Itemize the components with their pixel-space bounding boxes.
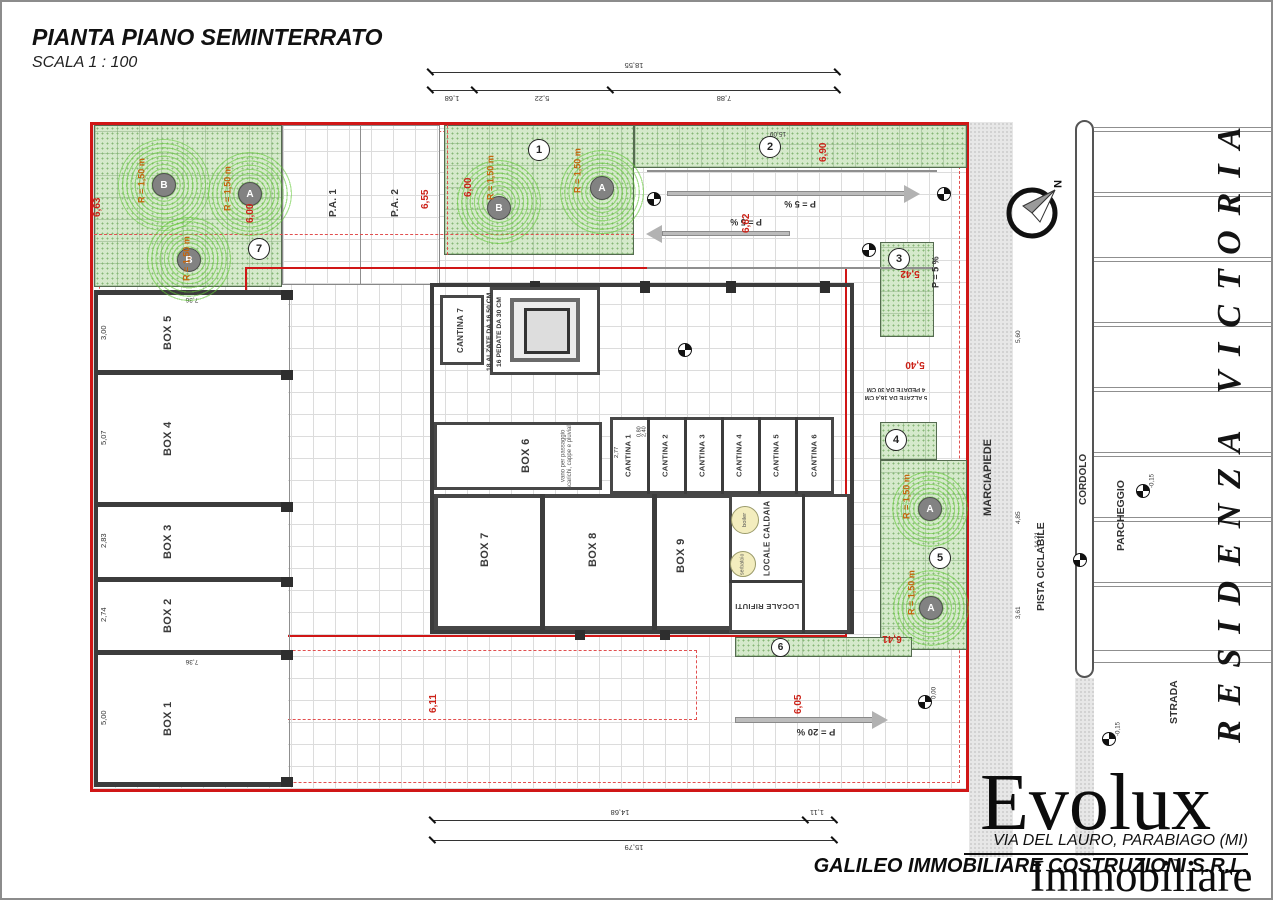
box-room (98, 655, 288, 782)
page-title: PIANTA PIANO SEMINTERRATO (32, 24, 383, 51)
tree-marker-a: A (918, 497, 942, 521)
compass: N (1003, 182, 1065, 244)
ramp-arrow-west (662, 231, 790, 236)
stair-treads-note: 16 PEDATE DA 30 CM (495, 287, 504, 377)
wall (758, 417, 761, 494)
dim-top-c: 7,88 (702, 94, 746, 103)
sidewalk-label: MARCIAPIEDE (981, 402, 997, 552)
red-dim: 5,42 (890, 268, 930, 279)
drawing-sheet: PIANTA PIANO SEMINTERRATO SCALA 1 : 100 … (0, 0, 1273, 900)
dim-box4-depth: 5,07 (99, 417, 109, 459)
tree-radius-label: R = 1,50 m (222, 160, 234, 218)
zone-circle-7: 7 (248, 238, 270, 260)
dim-sidewalk-b: 3,61 (1015, 595, 1024, 631)
stair-risers-note: 18 ALZATE DA 16,50 CM (485, 287, 494, 377)
dim-box1-depth: 5,00 (99, 697, 109, 739)
dim-top-b: 5,22 (522, 94, 562, 103)
room-label-cantina4: CANTINA 4 (733, 424, 746, 488)
ramp-arrow-east (667, 191, 905, 196)
level-value: -0,15 (1148, 468, 1157, 494)
room-label-cantina3: CANTINA 3 (696, 424, 709, 488)
wall (684, 417, 687, 494)
pilaster (281, 650, 293, 660)
wall (802, 494, 805, 633)
room-label-box9: BOX 9 (674, 520, 690, 592)
tree-radius-label: R = 1,50 m (136, 152, 148, 210)
dim-strip-width: 15,09 (758, 130, 798, 137)
level-marker (937, 187, 951, 201)
dim-bottom-b: 1,11 (800, 808, 834, 817)
red-dim: 5,40 (895, 359, 935, 370)
company-name: GALILEO IMMOBILIARE COSTRUZIONI S.R.L. (720, 855, 1248, 878)
wall (94, 650, 290, 655)
zone-circle-1: 1 (528, 139, 550, 161)
zone-circle-4: 4 (885, 429, 907, 451)
curb-pill (1075, 120, 1094, 678)
ramp-arrowhead (646, 225, 662, 243)
dim-line-top-segments (430, 90, 838, 91)
road-label: STRADA (1167, 657, 1182, 747)
red-dim: 6,90 (818, 132, 830, 172)
box-room (98, 295, 288, 370)
parking-bay-area (282, 125, 440, 285)
dim-top-a: 1,68 (434, 94, 470, 103)
room-label-rifiuti: LOCALE RIFIUTI (731, 602, 803, 611)
level-marker (862, 243, 876, 257)
red-dim: 6,63 (92, 182, 104, 232)
level-marker (1073, 553, 1087, 567)
parking-bay-divider (360, 125, 361, 285)
tree-marker-a: A (590, 176, 614, 200)
room-label-box1: BOX 1 (160, 660, 178, 778)
ramp-edge (647, 170, 937, 172)
dim-cantina-width: 2,77 (613, 437, 621, 467)
company-address: VIA DEL LAURO, PARABIAGO (MI) (962, 832, 1248, 850)
red-dim: 6,00 (463, 164, 475, 210)
pilaster (281, 290, 293, 300)
zone-circle-3: 3 (888, 248, 910, 270)
tree-radius-label: R = 1,50 m (181, 230, 193, 288)
dim-box-width: 7,36 (174, 658, 210, 665)
dim-curb-run: 14,21 (1034, 520, 1043, 560)
dim-line-top-total (430, 72, 838, 73)
room-label-cantina6: CANTINA 6 (808, 424, 821, 488)
garage-door-line (289, 292, 290, 784)
room-label-cantina7: CANTINA 7 (454, 299, 468, 361)
room-label-box5: BOX 5 (160, 302, 178, 364)
level-value: -0,15 (1114, 716, 1123, 742)
parking-label: PARCHEGGIO (1114, 452, 1129, 580)
wall (94, 502, 290, 507)
ext-stair-treads: 4 PEDATE DA 30 CM (860, 386, 932, 392)
wall (94, 577, 290, 582)
room-label-cantina1: CANTINA 1 (622, 424, 635, 488)
box6-note: vano per passaggio scarichi, cappe e plu… (558, 422, 576, 490)
room-label-box3: BOX 3 (160, 510, 178, 574)
project-name-vertical: RESIDENZA VICTORIA (1202, 57, 1258, 797)
pilaster (281, 370, 293, 380)
level-marker (678, 343, 692, 357)
garden-strip-northeast (634, 125, 967, 168)
room-label-box2: BOX 2 (160, 584, 178, 648)
red-dim: 6,62 (741, 200, 753, 246)
room-label-cantina2: CANTINA 2 (659, 424, 672, 488)
dim-line-bottom-segments (432, 820, 835, 821)
zone-circle-5: 5 (929, 547, 951, 569)
dim-box3-depth: 2,83 (99, 520, 109, 562)
dim-bottom-total: 15,79 (612, 843, 656, 852)
level-marker (647, 192, 661, 206)
boiler-tank: boiler (731, 506, 759, 534)
dim-bike-lane: 4,85 (1015, 500, 1024, 536)
tree-radius-label: R = 1,50 m (906, 564, 918, 622)
wall (94, 370, 290, 375)
room-label-box8: BOX 8 (586, 514, 602, 586)
red-dim: 6,55 (420, 174, 432, 224)
dim-bottom-a: 14,68 (598, 808, 642, 817)
wall (721, 417, 724, 494)
pilaster (726, 281, 736, 293)
wall (652, 494, 657, 630)
parking-bay-1-label: P.A. 1 (326, 167, 342, 239)
room-label-box7: BOX 7 (478, 514, 494, 586)
red-dim: 6,05 (793, 679, 805, 729)
pilaster (281, 577, 293, 587)
dim-cantina-door-h: 2,40 (642, 420, 649, 444)
tree-radius-label: R = 1,50 m (485, 149, 497, 207)
wall (795, 417, 798, 494)
wall (729, 580, 805, 583)
box-room (98, 375, 288, 502)
pilaster (820, 281, 830, 293)
boiler-label: boiler (731, 506, 759, 534)
dim-box2-depth: 2,74 (99, 594, 109, 636)
wall (94, 782, 290, 787)
bike-lane-label: PISTA CICLABILE (1034, 482, 1049, 652)
zone-circle-6: 6 (771, 638, 790, 657)
level-value: 0,00 (930, 680, 939, 706)
curb-label: CORDOLO (1077, 432, 1091, 527)
pilaster (281, 777, 293, 787)
ext-stair-risers: 5 ALZATE DA 16,4 CM (860, 394, 932, 400)
box6-room (434, 422, 602, 490)
red-dim: 6,41 (872, 633, 912, 644)
room-label-box4: BOX 4 (160, 390, 178, 488)
wall (540, 494, 545, 630)
wall (94, 290, 98, 787)
dim-line-bottom-total (432, 840, 835, 841)
ramp-slope-label: P = 5 % (772, 199, 828, 209)
room-label-cantina5: CANTINA 5 (770, 424, 783, 488)
parking-bay-2-label: P.A. 2 (388, 167, 404, 239)
dim-box5-depth: 3,00 (99, 312, 109, 354)
red-dashed-line (447, 125, 448, 255)
tree-marker-a: A (919, 596, 943, 620)
storage-tank-label: serbatoio (730, 551, 756, 577)
scale-label: SCALA 1 : 100 (32, 54, 137, 72)
pilaster (640, 281, 650, 293)
red-dim: 6,11 (428, 679, 440, 729)
box-room (98, 582, 288, 650)
ramp-arrowhead (872, 711, 888, 729)
pilaster (281, 502, 293, 512)
storage-tank: serbatoio (730, 551, 756, 577)
compass-north-label: N (1051, 180, 1063, 188)
room-label-caldaia: LOCALE CALDAIA (760, 500, 775, 576)
wall (850, 283, 854, 634)
dim-sidewalk: 5,60 (1015, 319, 1024, 355)
red-dim: 6,00 (245, 190, 257, 236)
ramp-arrowhead (904, 185, 920, 203)
ramp-slope-label-vert: P = 5 % (930, 237, 942, 307)
box-room (98, 507, 288, 577)
tree-marker-b: B (152, 173, 176, 197)
zone-circle-2: 2 (759, 136, 781, 158)
elevator-car (524, 308, 570, 354)
dim-top-total: 18,55 (614, 61, 654, 70)
room-label-box6: BOX 6 (519, 424, 535, 488)
tree-radius-label: R = 1,50 m (901, 468, 913, 526)
tree-radius-label: R = 1,50 m (572, 142, 584, 200)
